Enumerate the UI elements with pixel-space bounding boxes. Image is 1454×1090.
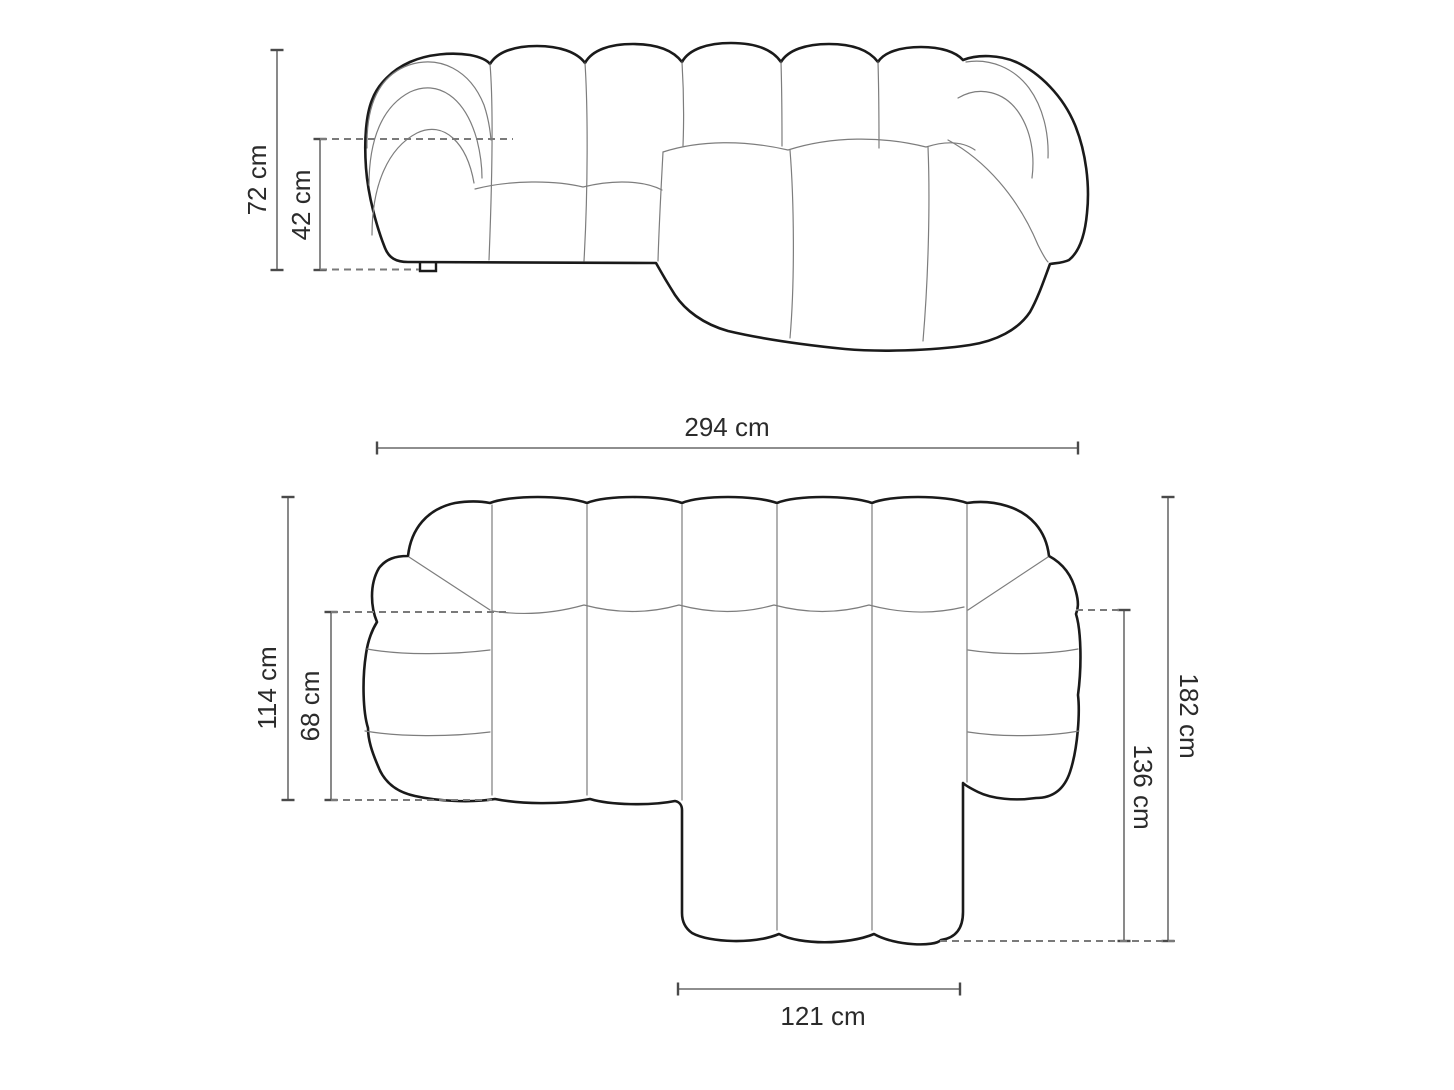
dimension-drawing-page: 72 cm 42 cm — [0, 0, 1454, 1090]
top-plan-view: 294 cm 114 cm 68 cm 182 cm 1 — [252, 412, 1204, 1031]
sofa-dimension-diagram: 72 cm 42 cm — [0, 0, 1454, 1090]
plan-sofa-outline — [364, 497, 1081, 944]
sofa-foot — [420, 263, 436, 271]
dim-left-depth: 114 cm — [252, 497, 294, 800]
dim-seat-depth: 68 cm — [295, 612, 337, 800]
dim-label-total-depth: 182 cm — [1174, 673, 1204, 758]
dim-seat-height: 42 cm — [286, 139, 326, 270]
dim-label-total-height: 72 cm — [242, 145, 272, 216]
dim-label-seat-depth: 68 cm — [295, 671, 325, 742]
dim-chaise-depth: 136 cm — [1118, 610, 1158, 941]
dim-total-depth: 182 cm — [1162, 497, 1204, 941]
dim-label-chaise-width: 121 cm — [780, 1001, 865, 1031]
front-elevation-view: 72 cm 42 cm — [242, 43, 1088, 351]
dim-total-height: 72 cm — [242, 50, 283, 270]
dim-label-seat-height: 42 cm — [286, 170, 316, 241]
dim-label-left-depth: 114 cm — [252, 646, 282, 729]
dim-label-total-width: 294 cm — [684, 412, 769, 442]
dim-chaise-width: 121 cm — [678, 983, 960, 1032]
dim-total-width: 294 cm — [377, 412, 1078, 455]
dim-label-chaise-depth: 136 cm — [1128, 744, 1158, 829]
front-sofa-outline — [365, 43, 1088, 351]
